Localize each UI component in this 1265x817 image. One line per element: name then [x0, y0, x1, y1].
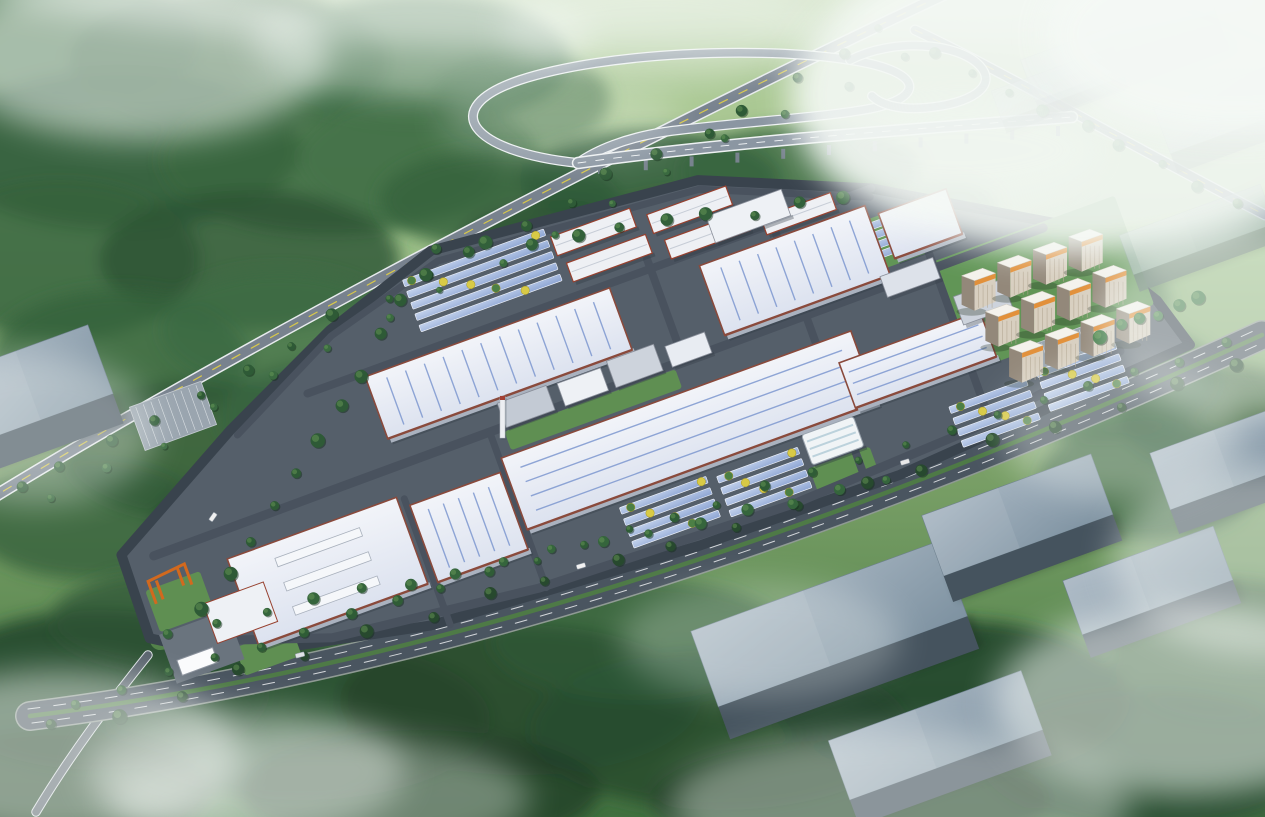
tree-highlight — [376, 329, 382, 335]
viaduct-pier — [690, 156, 694, 166]
tree-highlight — [308, 594, 314, 600]
tree-highlight — [696, 519, 702, 525]
tree-highlight — [837, 192, 844, 199]
tree-highlight — [737, 106, 743, 112]
tree-highlight — [809, 468, 814, 473]
tree-highlight — [903, 442, 907, 446]
tree-highlight — [883, 477, 887, 481]
tree-highlight — [327, 310, 333, 316]
tree-highlight — [835, 485, 841, 491]
tower-side-face — [1081, 322, 1094, 357]
tree-highlight — [165, 668, 169, 672]
tree-highlight — [599, 537, 604, 542]
chimney-body — [500, 396, 505, 438]
tree-highlight — [324, 345, 328, 349]
tree-highlight — [662, 215, 668, 221]
tree-highlight — [663, 169, 667, 173]
tree-highlight — [666, 542, 671, 547]
tree-highlight — [464, 247, 470, 253]
tree-highlight — [552, 232, 556, 236]
tree-highlight — [761, 481, 766, 486]
tree-highlight — [615, 223, 620, 228]
viaduct-pier — [781, 149, 785, 159]
tree-highlight — [500, 260, 504, 264]
tower-side-face — [1021, 299, 1034, 334]
tree-highlight — [916, 466, 922, 472]
tree-highlight — [288, 343, 292, 347]
tree-highlight — [264, 609, 268, 613]
scene-canvas — [0, 0, 1265, 817]
tower-side-face — [1033, 250, 1046, 285]
tree-highlight — [713, 502, 717, 506]
tree-highlight — [393, 596, 398, 601]
tree-highlight — [164, 630, 169, 635]
tree-highlight — [211, 654, 215, 658]
tree-highlight — [432, 245, 437, 250]
tree-highlight — [522, 221, 527, 226]
tree-highlight — [614, 555, 620, 561]
tree-highlight — [700, 208, 707, 215]
tree-highlight — [292, 469, 297, 474]
tree-highlight — [627, 526, 631, 530]
tree-highlight — [485, 588, 491, 594]
tree-highlight — [480, 237, 487, 244]
tree-highlight — [395, 295, 401, 301]
tree-highlight — [855, 457, 859, 461]
tree-highlight — [347, 609, 353, 615]
tower-side-face — [1009, 348, 1022, 383]
mist-cloud — [820, 100, 1100, 200]
tree-highlight — [271, 502, 276, 507]
tree-highlight — [161, 443, 164, 446]
tree-highlight — [527, 240, 533, 246]
tree-highlight — [225, 568, 232, 575]
tree-highlight — [862, 478, 868, 484]
tree-highlight — [782, 111, 786, 115]
tree-highlight — [244, 366, 250, 372]
aerial-site-rendering — [0, 0, 1265, 817]
tree-highlight — [269, 372, 273, 376]
tree-highlight — [337, 401, 343, 407]
tree-highlight — [743, 505, 749, 511]
tree-highlight — [247, 538, 252, 543]
tree-highlight — [437, 585, 441, 589]
tree-highlight — [451, 569, 456, 574]
tree-highlight — [358, 584, 363, 589]
tree-highlight — [196, 603, 203, 610]
tower-side-face — [962, 276, 975, 311]
tree-highlight — [581, 542, 585, 546]
tower-side-face — [1045, 335, 1058, 370]
tree-highlight — [361, 626, 368, 633]
tree-highlight — [420, 269, 427, 276]
mist-cloud — [440, 80, 680, 160]
tree-highlight — [788, 500, 793, 505]
tree-highlight — [609, 201, 613, 205]
tree-highlight — [233, 664, 239, 670]
tree-highlight — [987, 434, 994, 441]
mist-cloud — [1000, 360, 1240, 500]
tree-highlight — [312, 435, 319, 442]
tree-highlight — [795, 197, 801, 203]
tree-highlight — [706, 129, 711, 134]
tree-highlight — [534, 558, 538, 562]
tree-highlight — [386, 296, 390, 300]
tree-highlight — [573, 230, 580, 237]
tree-highlight — [751, 212, 756, 217]
tree-highlight — [645, 530, 649, 534]
tree-highlight — [213, 620, 217, 624]
tree-highlight — [568, 199, 573, 204]
tree-highlight — [994, 412, 998, 416]
tree-highlight — [437, 287, 440, 290]
tree-highlight — [948, 426, 953, 431]
tree-highlight — [652, 149, 658, 155]
tower-side-face — [1057, 286, 1070, 321]
tree-highlight — [356, 371, 363, 378]
tree-highlight — [429, 613, 434, 618]
tree-highlight — [601, 169, 607, 175]
tower-side-face — [985, 312, 998, 347]
viaduct-pier — [735, 153, 739, 163]
tower-side-face — [997, 263, 1010, 298]
tree-highlight — [406, 580, 412, 586]
tree-highlight — [300, 629, 305, 634]
tree-highlight — [733, 524, 738, 529]
viaduct-pier — [644, 160, 648, 170]
tree-highlight — [541, 577, 546, 582]
tree-highlight — [198, 392, 202, 396]
tree-highlight — [258, 644, 263, 649]
tree-highlight — [548, 546, 552, 550]
chimney-stack — [500, 396, 507, 440]
tree-highlight — [500, 558, 505, 563]
mist-cloud — [620, 580, 900, 700]
tree-highlight — [485, 567, 490, 572]
tree-highlight — [671, 514, 676, 519]
tree-highlight — [211, 404, 215, 408]
chimney-band — [500, 396, 505, 400]
tree-highlight — [387, 315, 391, 319]
tree-highlight — [721, 135, 725, 139]
